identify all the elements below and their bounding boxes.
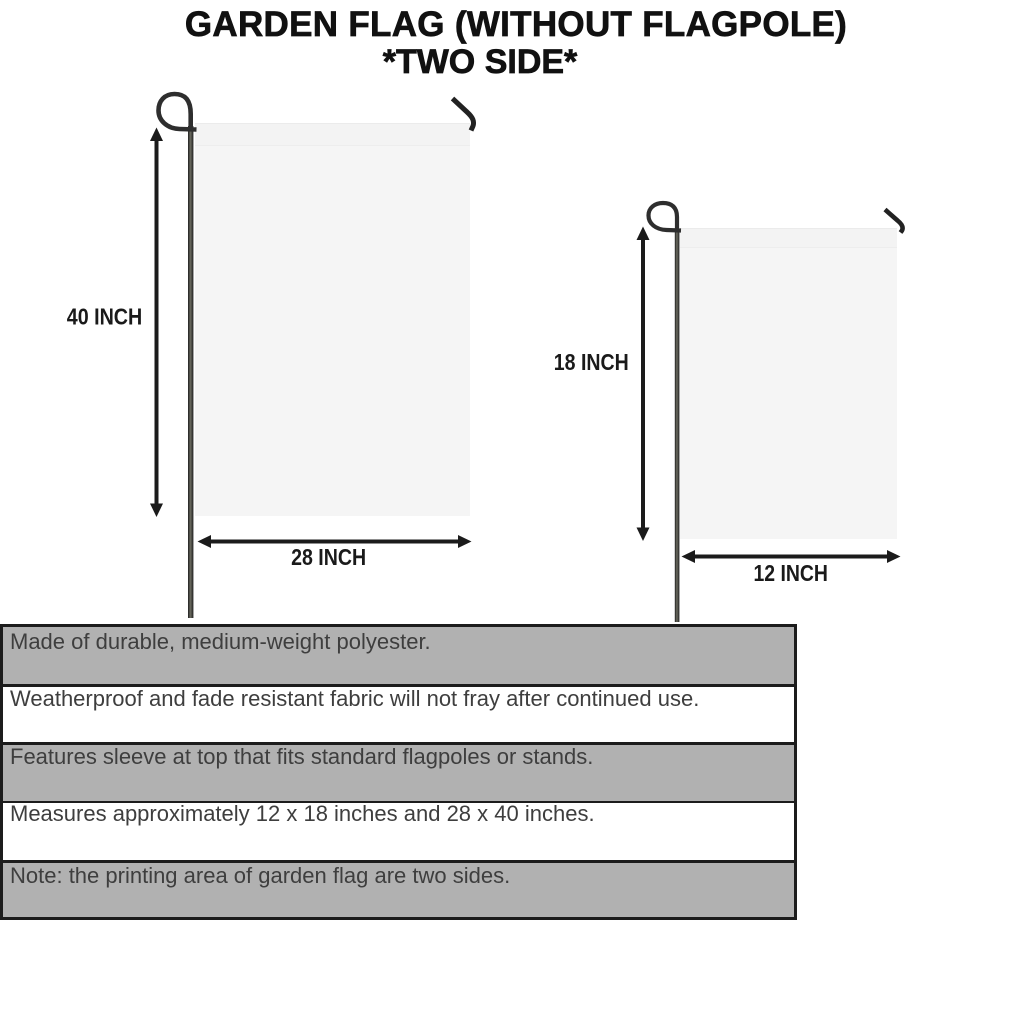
svg-text:28 INCH: 28 INCH: [291, 544, 366, 570]
svg-text:40 INCH: 40 INCH: [67, 303, 143, 329]
svg-text:18 INCH: 18 INCH: [554, 349, 629, 375]
svg-text:12 INCH: 12 INCH: [753, 560, 828, 586]
